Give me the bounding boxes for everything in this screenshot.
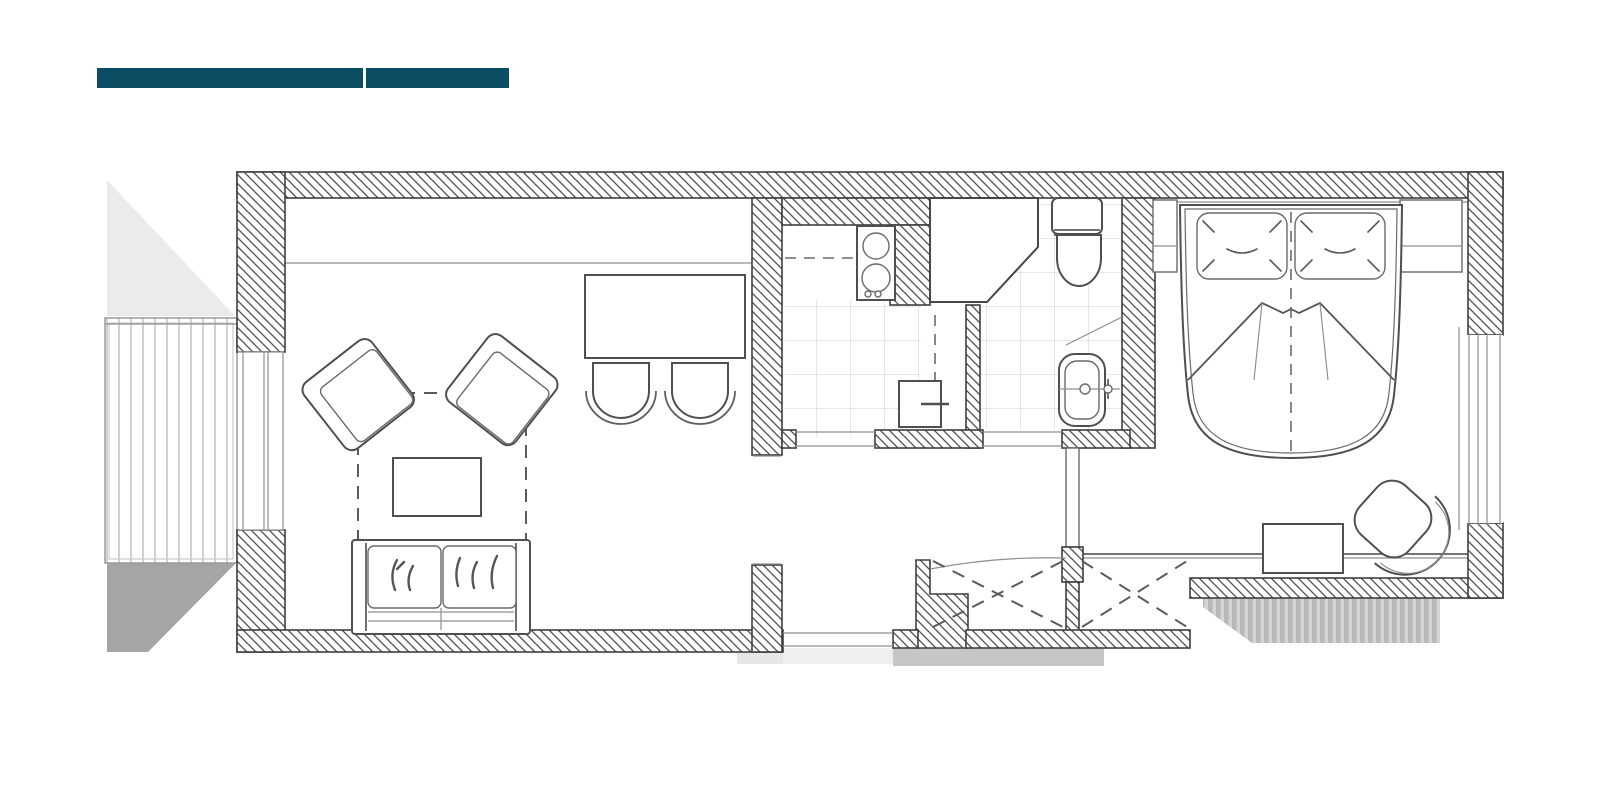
armchair-right (442, 330, 561, 449)
double-bed (1180, 205, 1402, 458)
floor-plan-canvas (0, 0, 1600, 800)
wall-bath-bottom-right (1062, 430, 1130, 448)
wall-kitchen-bump (966, 305, 980, 448)
shadow-under-entrance (783, 648, 893, 664)
sink-drain (1080, 384, 1090, 394)
closet-right (1082, 561, 1187, 627)
wall-right-lower (1468, 523, 1503, 598)
shadow-triangle-bottom (107, 563, 236, 652)
wall-closet-left-step (916, 560, 968, 648)
wall-top (237, 172, 1503, 198)
toilet-tank (1052, 198, 1102, 234)
wall-bath-right (1122, 198, 1155, 448)
toilet (1052, 198, 1102, 286)
wall-left-upper (237, 172, 285, 352)
wall-right-upper (1468, 172, 1503, 335)
stove-burner-1 (863, 233, 889, 259)
wall-closet-bottom (966, 630, 1190, 648)
title-bar-secondary (366, 68, 509, 88)
balcony-deck (105, 318, 237, 563)
sofa-cushion-right (443, 546, 516, 608)
coffee-table (393, 458, 481, 516)
armchair-left (298, 335, 417, 454)
closet-left-front-curve (930, 558, 1066, 569)
living-room (298, 275, 745, 634)
dining-chair-right (665, 363, 735, 424)
wall-kitchen-top (782, 198, 930, 225)
shadow-triangle-top (107, 180, 235, 316)
toilet-bowl (1057, 235, 1101, 286)
stove-burner-2 (862, 264, 890, 292)
pillow-right (1295, 213, 1385, 279)
wall-closet-separator-thin (1066, 448, 1079, 547)
dining-chair-left (586, 363, 656, 424)
shadow-band-closets (893, 648, 1104, 666)
wall-bedroom-bottom (1190, 578, 1503, 598)
window-right-bedroom (1459, 327, 1503, 530)
wall-living-hall-upper (752, 198, 782, 455)
dining-table (585, 275, 745, 358)
title-bar-primary (97, 68, 363, 88)
bedroom (1153, 200, 1468, 593)
pillow-left (1197, 213, 1287, 279)
floor-plan-page (0, 0, 1600, 800)
wall-living-hall-lower (752, 565, 782, 652)
sofa (352, 540, 530, 634)
bedroom-chair (1338, 463, 1468, 593)
wall-bath-bottom-left (875, 430, 983, 448)
desk (1263, 524, 1343, 573)
title-bars (97, 68, 509, 88)
nightstand-right (1400, 200, 1462, 272)
kitchen-sink (899, 381, 949, 427)
sofa-cushion-left (368, 546, 441, 608)
nightstand-left (1153, 200, 1177, 272)
window-left-balcony-door (238, 352, 284, 530)
sink-faucet (1104, 385, 1112, 393)
stove (857, 226, 895, 300)
door-openings (753, 432, 1062, 646)
